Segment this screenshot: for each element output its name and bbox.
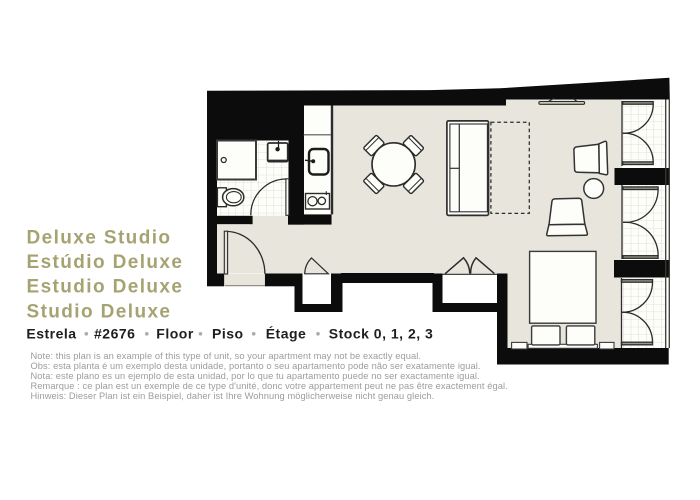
- svg-text:Piso: Piso: [212, 326, 244, 342]
- svg-text:Deluxe Studio: Deluxe Studio: [27, 227, 172, 248]
- svg-text:Obs: esta planta é um exemplo: Obs: esta planta é um exemplo desta unid…: [31, 361, 481, 371]
- svg-text:Stock 0, 1, 2, 3: Stock 0, 1, 2, 3: [329, 326, 434, 342]
- svg-text:Étage: Étage: [266, 326, 307, 342]
- svg-text:Nota: este plano es un ejemplo: Nota: este plano es un ejemplo de esta u…: [31, 371, 480, 381]
- svg-text:Studio Deluxe: Studio Deluxe: [27, 301, 172, 322]
- svg-text:Estrela: Estrela: [26, 326, 76, 342]
- svg-text:Note: this plan is an example: Note: this plan is an example of this ty…: [31, 351, 422, 361]
- svg-text:Hinweis: Dieser Plan ist ein B: Hinweis: Dieser Plan ist ein Beispiel, d…: [31, 391, 435, 401]
- svg-text:Estúdio Deluxe: Estúdio Deluxe: [27, 252, 184, 273]
- svg-text:#2676: #2676: [94, 326, 135, 342]
- svg-text:Estudio Deluxe: Estudio Deluxe: [27, 277, 184, 298]
- svg-text:Remarque : ce plan est un exem: Remarque : ce plan est un exemple de ce …: [31, 381, 508, 391]
- svg-text:Floor: Floor: [156, 326, 194, 342]
